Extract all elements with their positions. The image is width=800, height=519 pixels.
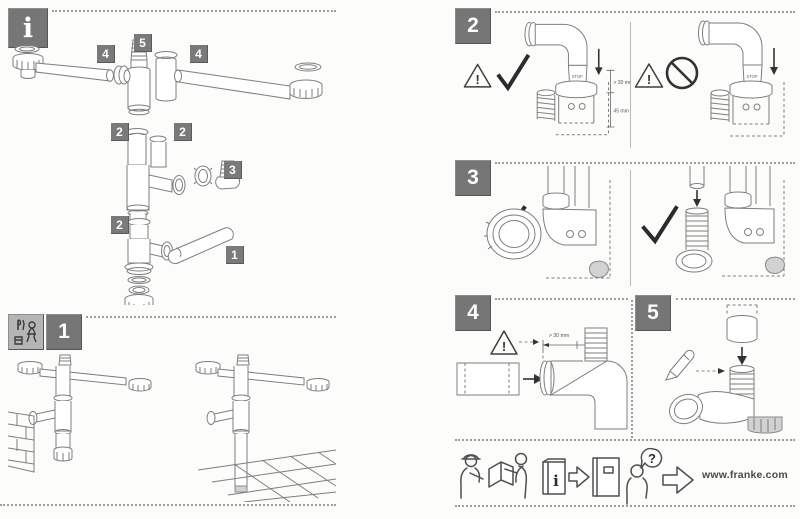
part-badge: 4 (97, 45, 115, 63)
step-1-number: 1 (46, 314, 82, 350)
dotted-divider (495, 162, 795, 164)
handover-icon (461, 454, 527, 499)
dotted-divider (455, 505, 795, 507)
part-badge: 5 (134, 34, 152, 52)
dimension-lines: > 30 mm 45 mm (607, 70, 630, 127)
installed-wall-illustration (8, 352, 168, 502)
svg-text:!: ! (502, 339, 506, 354)
step4-illustration: ! > 30 mm 50 mm (455, 325, 630, 439)
arrow-down-icon (693, 190, 701, 207)
exploded-parts-illustration (0, 15, 340, 305)
step5-illustration (648, 303, 795, 440)
dim-min-label: > 30 mm (549, 333, 569, 339)
dotted-divider (86, 316, 336, 318)
panel-divider (630, 170, 631, 286)
part-badge: 3 (224, 161, 242, 179)
dim-total-label: 45 mm (613, 108, 628, 114)
manual-icon: i (543, 458, 619, 496)
question-icon: ? (627, 449, 693, 504)
check-icon (499, 57, 527, 88)
question-mark-label: ? (648, 451, 656, 466)
pencil-icon (666, 350, 694, 380)
footer-pictograms: i ? (455, 446, 700, 506)
part-badge: 2 (174, 123, 192, 141)
arrow-down-icon (737, 347, 747, 365)
warning-icon: ! (491, 331, 517, 354)
dotted-divider (0, 504, 336, 506)
stop-label: STOP (746, 74, 758, 79)
dotted-divider (676, 298, 795, 300)
dim-insertion-label: > 30 mm (613, 80, 630, 86)
website-link[interactable]: www.franke.com (702, 469, 788, 481)
dotted-divider (631, 300, 633, 438)
step3-capped-illustration (462, 166, 628, 286)
svg-text:!: ! (476, 73, 480, 87)
check-icon (644, 208, 676, 241)
dotted-divider (52, 10, 336, 12)
dotted-divider (495, 11, 795, 13)
tools-icon (8, 314, 44, 350)
arrow-down-icon (770, 48, 778, 75)
step2-correct-illustration: ! STOP > 30 mm 45 mm (462, 16, 630, 150)
panel-divider (630, 22, 631, 148)
warning-icon: ! (636, 64, 663, 87)
step2-wrong-illustration: ! STOP (634, 16, 796, 150)
arrow-right-icon (569, 467, 589, 487)
part-badge: 1 (226, 246, 244, 264)
part-badge: 2 (111, 123, 129, 141)
part-badge: 2 (111, 216, 129, 234)
instruction-sheet: i (0, 0, 800, 519)
svg-text:!: ! (647, 72, 651, 87)
dotted-divider (495, 298, 628, 300)
stop-label: STOP (572, 74, 583, 79)
arrow-right-icon (663, 467, 693, 493)
part-badge: 4 (190, 45, 208, 63)
tools-pictogram (11, 317, 41, 347)
warning-icon: ! (464, 64, 490, 87)
arrow-down-icon (595, 49, 603, 75)
prohibition-icon (667, 58, 697, 88)
step3-hose-illustration (634, 166, 796, 286)
installed-floor-illustration (178, 352, 338, 502)
info-booklet-label: i (553, 472, 559, 490)
